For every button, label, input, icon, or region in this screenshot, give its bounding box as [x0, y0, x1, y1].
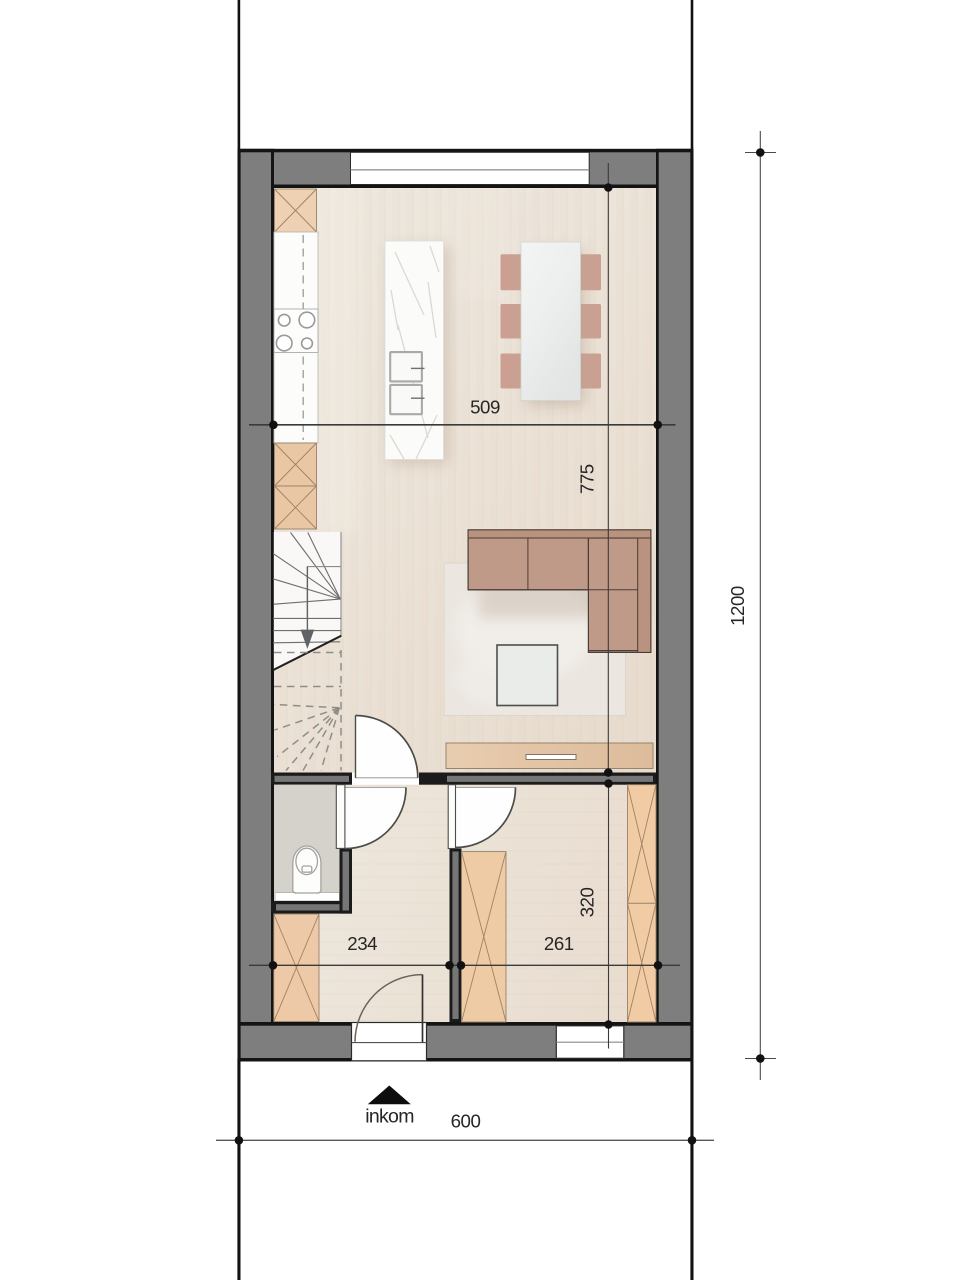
svg-text:inkom: inkom [365, 1106, 414, 1128]
svg-text:600: 600 [451, 1111, 481, 1132]
svg-text:509: 509 [470, 397, 500, 418]
svg-text:320: 320 [577, 888, 598, 918]
svg-text:261: 261 [544, 933, 574, 954]
svg-text:1200: 1200 [727, 586, 748, 626]
svg-text:775: 775 [576, 464, 597, 494]
svg-text:234: 234 [347, 933, 377, 954]
